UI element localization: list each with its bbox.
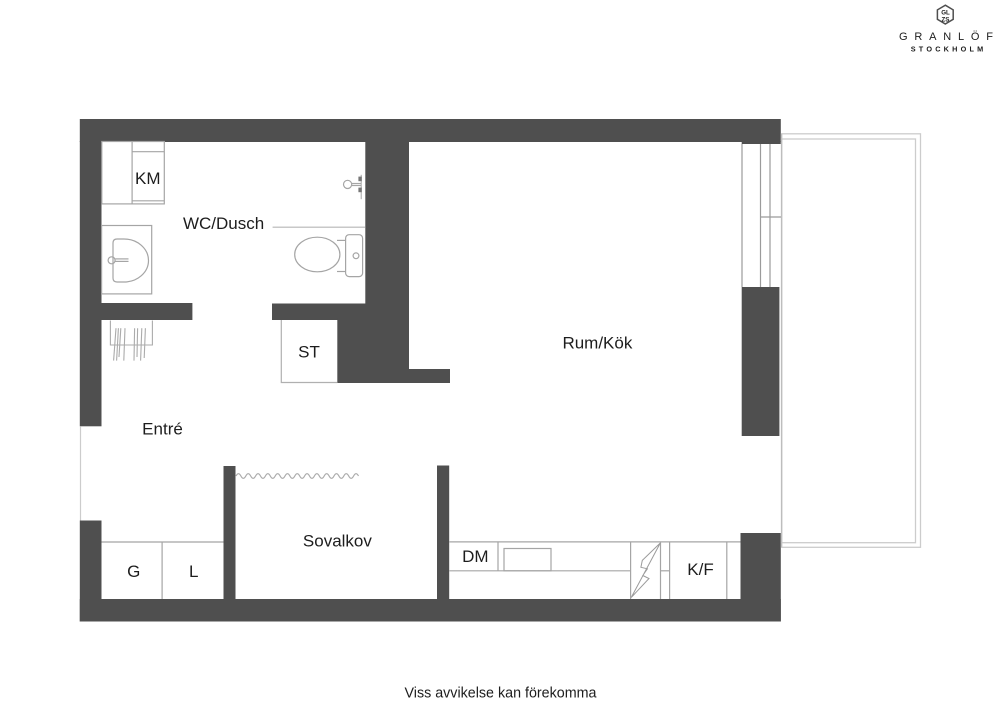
- svg-text:K/F: K/F: [687, 560, 713, 579]
- svg-text:ZS: ZS: [942, 16, 950, 23]
- svg-text:G: G: [127, 562, 140, 581]
- svg-text:STOCKHOLM: STOCKHOLM: [911, 45, 987, 54]
- svg-text:GRANLÖF: GRANLÖF: [899, 31, 1000, 43]
- svg-text:KM: KM: [135, 169, 161, 188]
- svg-text:Sovalkov: Sovalkov: [303, 532, 372, 551]
- svg-text:Viss avvikelse kan förekomma: Viss avvikelse kan förekomma: [404, 686, 596, 702]
- svg-text:DM: DM: [462, 547, 488, 566]
- svg-text:WC/Dusch: WC/Dusch: [183, 214, 264, 233]
- svg-text:L: L: [189, 562, 198, 581]
- svg-text:Entré: Entré: [142, 419, 183, 438]
- svg-text:ST: ST: [298, 342, 320, 361]
- svg-text:Rum/Kök: Rum/Kök: [562, 334, 632, 353]
